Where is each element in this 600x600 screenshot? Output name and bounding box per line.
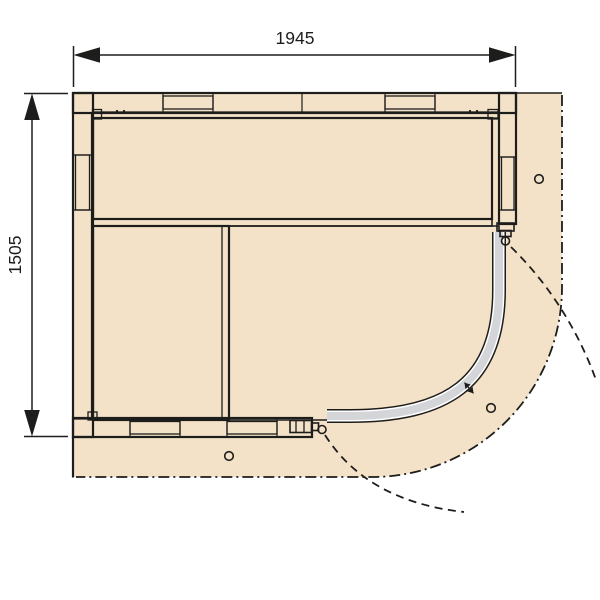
- dimension-arrow-down: [24, 410, 40, 437]
- height-dimension: 1505: [5, 94, 68, 437]
- dimension-label-height: 1505: [5, 236, 25, 275]
- width-dimension: 1945: [74, 28, 516, 87]
- plan-drawing: 1945 1505: [0, 0, 600, 600]
- sauna-floor-plan: 1945 1505: [0, 0, 600, 600]
- dimension-label-width: 1945: [276, 28, 315, 48]
- dimension-arrow-right: [489, 47, 516, 63]
- dimension-arrow-up: [24, 94, 40, 121]
- dimension-arrow-left: [74, 47, 101, 63]
